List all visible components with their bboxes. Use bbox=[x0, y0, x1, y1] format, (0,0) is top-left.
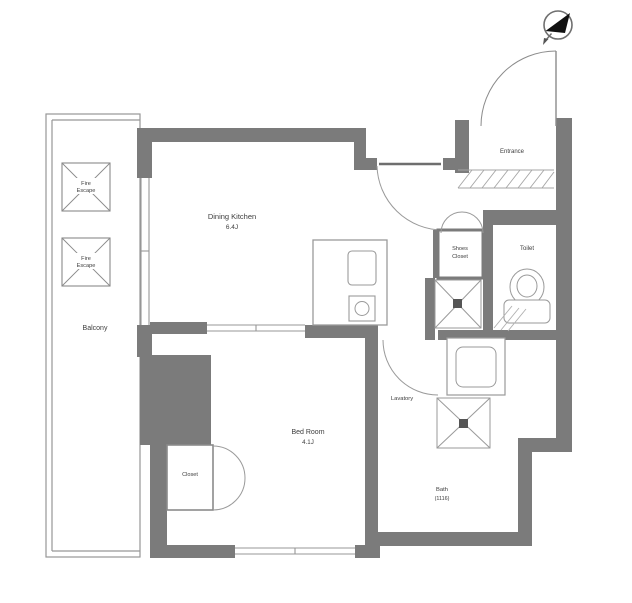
wall-segment bbox=[150, 322, 207, 334]
washing-machine-pan bbox=[437, 398, 490, 448]
fire-escape-label-line1: Fire bbox=[81, 181, 91, 187]
floor-hatch bbox=[435, 280, 481, 328]
wall-segment bbox=[137, 325, 152, 357]
fire-escape-label-line2: Escape bbox=[77, 188, 96, 194]
room-label-toilet: Toilet bbox=[520, 246, 534, 252]
room-label-entrance: Entrance bbox=[500, 149, 525, 155]
room-label-shoes-closet-line2: Closet bbox=[452, 254, 468, 260]
wall-segment bbox=[443, 158, 457, 170]
wall-segment bbox=[365, 333, 378, 558]
closet-door-arc bbox=[213, 478, 245, 510]
floor-plan-page: Fire Escape Fire Escape Balcony bbox=[0, 0, 632, 603]
entrance-door bbox=[481, 51, 556, 126]
dk-door bbox=[377, 164, 443, 230]
room-label-shoes-closet-line1: Shoes bbox=[452, 246, 468, 252]
room-label-dining-kitchen: Dining Kitchen bbox=[208, 212, 256, 221]
bath-room: Bath (1116) bbox=[435, 487, 450, 502]
wall-segment bbox=[354, 128, 366, 170]
fire-escape-label-line2: Escape bbox=[77, 263, 96, 269]
wall-segment bbox=[137, 128, 152, 178]
fire-escape-hatch: Fire Escape bbox=[62, 163, 110, 211]
toilet-fixture bbox=[504, 269, 550, 323]
closet: Closet bbox=[167, 445, 245, 510]
room-size-bath: (1116) bbox=[435, 496, 450, 502]
wall-segment bbox=[137, 128, 354, 142]
room-label-bath: Bath bbox=[436, 487, 448, 493]
kitchen-stove bbox=[349, 296, 375, 321]
room-size-dining-kitchen: 6.4J bbox=[226, 224, 238, 231]
wall-segment bbox=[150, 445, 167, 558]
bedroom-window bbox=[235, 548, 355, 554]
closet-door-arc bbox=[213, 446, 245, 478]
room-label-balcony: Balcony bbox=[83, 325, 108, 332]
room-size-bed-room: 4.1J bbox=[302, 439, 314, 446]
wall-segment bbox=[483, 210, 556, 225]
fire-escape-label-line1: Fire bbox=[81, 256, 91, 262]
room-label-bed-room: Bed Room bbox=[291, 429, 324, 436]
sliding-door bbox=[207, 325, 305, 331]
shoes-closet: Shoes Closet bbox=[438, 212, 483, 278]
room-label-lavatory: Lavatory bbox=[391, 396, 413, 402]
kitchen-sink bbox=[348, 251, 376, 285]
wall-segment bbox=[355, 545, 380, 558]
floor-plan: Fire Escape Fire Escape Balcony bbox=[0, 0, 632, 603]
wall-segment bbox=[556, 118, 572, 445]
wall-segment bbox=[518, 452, 532, 546]
north-arrow-icon bbox=[543, 11, 572, 45]
washbasin bbox=[447, 338, 505, 395]
kitchen-counter bbox=[313, 240, 387, 325]
wall-segment bbox=[366, 158, 377, 170]
lavatory-door-arc bbox=[383, 340, 438, 395]
lavatory-room: Lavatory bbox=[383, 338, 505, 448]
room-label-closet: Closet bbox=[182, 472, 198, 478]
fire-escape-hatch: Fire Escape bbox=[62, 238, 110, 286]
balcony-window bbox=[141, 178, 149, 325]
wall-segment bbox=[455, 120, 469, 173]
wall-segment bbox=[140, 355, 211, 445]
entrance-step-hatch bbox=[458, 170, 554, 188]
wall-segment bbox=[518, 438, 572, 452]
wall-segment bbox=[378, 532, 532, 546]
wall-segment bbox=[425, 278, 435, 340]
wall-segment bbox=[305, 325, 378, 338]
toilet-room: Toilet bbox=[494, 246, 550, 331]
